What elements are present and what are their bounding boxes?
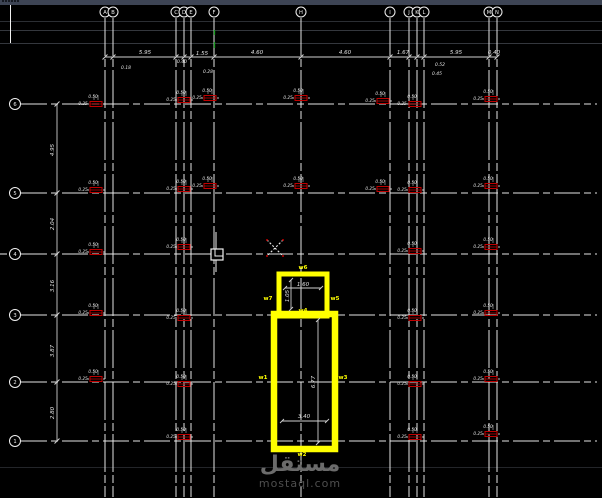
dimension-text: 2.04 bbox=[50, 217, 56, 230]
grid-bubble-label: F bbox=[213, 10, 216, 16]
wall-label: w1 bbox=[259, 375, 268, 381]
column-symbol-text: 0.50 bbox=[88, 180, 98, 185]
column-symbol-text: 0.25 bbox=[397, 381, 407, 386]
column-symbol-text: 0.50 bbox=[88, 94, 98, 99]
column-symbol-text: 0.25 bbox=[166, 315, 176, 320]
grid-bubble-label: 5 bbox=[13, 191, 16, 197]
dimension-text: 3.16 bbox=[50, 279, 56, 292]
drawing-canvas[interactable]: 5.951.554.604.601.675.950.400.180.400.28… bbox=[0, 0, 602, 498]
x-marker-tip bbox=[266, 255, 268, 257]
column-symbol-text: 0.50 bbox=[483, 424, 493, 429]
column-symbol-text: 0.25 bbox=[473, 431, 483, 436]
column-symbol-text: 0.25 bbox=[166, 434, 176, 439]
column-symbol-text: 0.25 bbox=[78, 101, 88, 106]
wall-label: w6 bbox=[299, 265, 308, 271]
column-symbol-text: 0.50 bbox=[176, 237, 186, 242]
column-symbol-text: 0.25 bbox=[78, 376, 88, 381]
grid-bubble-label: L bbox=[423, 10, 426, 16]
wall-label: w4 bbox=[299, 308, 308, 314]
column-symbol-text: 0.50 bbox=[176, 427, 186, 432]
pickbox-square[interactable] bbox=[211, 249, 223, 260]
watermark-arabic-text: مستقل bbox=[240, 453, 360, 476]
grid-bubble-label: 2 bbox=[13, 380, 16, 386]
grid-bubble-label: E bbox=[189, 10, 192, 16]
wall-label: w7 bbox=[264, 296, 273, 302]
grid-bubble-label: B bbox=[111, 10, 115, 16]
column-symbol-text: 0.25 bbox=[283, 183, 293, 188]
column-symbol-text: 0.50 bbox=[407, 94, 417, 99]
column-symbol-text: 0.25 bbox=[397, 187, 407, 192]
grid-bubble-label: M bbox=[487, 10, 491, 16]
column-symbol-text: 0.25 bbox=[473, 183, 483, 188]
column-symbol-text: 0.50 bbox=[88, 303, 98, 308]
column-symbol-text: 0.25 bbox=[166, 244, 176, 249]
dimension-text: 0.40 bbox=[488, 50, 501, 56]
column-symbol-text: 0.25 bbox=[473, 376, 483, 381]
grid-bubble-label: 6 bbox=[13, 102, 16, 108]
dimension-text: 2.80 bbox=[50, 406, 56, 419]
grid-bubble-label: H bbox=[299, 10, 303, 16]
dimension-text: 0.28 bbox=[203, 69, 213, 75]
dimension-text: 1.55 bbox=[196, 51, 209, 57]
cad-viewport: 5.951.554.604.601.675.950.400.180.400.28… bbox=[0, 0, 602, 498]
watermark-domain-text: mostaql.com bbox=[240, 477, 360, 490]
column-symbol-text: 0.50 bbox=[483, 303, 493, 308]
column-symbol-text: 0.25 bbox=[78, 187, 88, 192]
column-symbol-text: 0.25 bbox=[365, 98, 375, 103]
column-symbol-text: 0.50 bbox=[407, 427, 417, 432]
wall-label: w5 bbox=[331, 296, 340, 302]
x-marker-tip bbox=[282, 255, 284, 257]
column-symbol-text: 0.50 bbox=[293, 88, 303, 93]
column-symbol-text: 0.50 bbox=[407, 308, 417, 313]
grid-bubble-label: A bbox=[103, 10, 107, 16]
wall-dimension-text: 6.77 bbox=[311, 375, 317, 388]
grid-bubble-label: D bbox=[182, 10, 186, 16]
column-symbol-text: 0.50 bbox=[407, 374, 417, 379]
column-symbol-text: 0.50 bbox=[483, 176, 493, 181]
wall-dimension-text: 1.60 bbox=[297, 282, 310, 288]
grid-bubble-label: 1 bbox=[13, 439, 16, 445]
column-symbol-text: 0.25 bbox=[365, 186, 375, 191]
column-symbol-text: 0.50 bbox=[176, 374, 186, 379]
column-symbol-text: 0.25 bbox=[192, 95, 202, 100]
column-symbol-text: 0.50 bbox=[483, 237, 493, 242]
dimension-text: 0.18 bbox=[121, 65, 131, 71]
column-symbol-text: 0.25 bbox=[473, 244, 483, 249]
column-symbol-text: 0.25 bbox=[283, 95, 293, 100]
grid-bubble-label: N bbox=[495, 10, 499, 16]
column-symbol-text: 0.25 bbox=[397, 248, 407, 253]
column-symbol-text: 0.50 bbox=[202, 176, 212, 181]
column-symbol-text: 0.25 bbox=[397, 315, 407, 320]
column-symbol-text: 0.50 bbox=[176, 179, 186, 184]
column-symbol-text: 0.50 bbox=[483, 369, 493, 374]
column-symbol-text: 0.50 bbox=[375, 91, 385, 96]
dimension-text: 0.52 bbox=[435, 62, 445, 68]
x-marker-tip bbox=[282, 239, 284, 241]
dimension-text: 1.67 bbox=[397, 50, 410, 56]
dimension-text: 0.40 bbox=[177, 59, 187, 65]
column-symbol-text: 0.25 bbox=[192, 183, 202, 188]
grid-bubble-label: C bbox=[174, 10, 178, 16]
column-symbol-text: 0.25 bbox=[78, 310, 88, 315]
dimension-text: 4.95 bbox=[50, 143, 56, 156]
column-symbol-text: 0.50 bbox=[375, 179, 385, 184]
dimension-text: 5.95 bbox=[450, 50, 463, 56]
wall-label: w3 bbox=[339, 375, 348, 381]
column-symbol-text: 0.50 bbox=[88, 369, 98, 374]
dimension-text: 4.60 bbox=[339, 50, 352, 56]
column-symbol-text: 0.25 bbox=[473, 96, 483, 101]
column-symbol-text: 0.50 bbox=[407, 180, 417, 185]
watermark: مستقل mostaql.com bbox=[240, 453, 360, 490]
column-symbol-text: 0.25 bbox=[166, 186, 176, 191]
x-marker-tip bbox=[266, 239, 268, 241]
dimension-text: 5.95 bbox=[139, 50, 152, 56]
column-symbol-text: 0.25 bbox=[166, 381, 176, 386]
dimension-text: 0.45 bbox=[432, 71, 442, 77]
column-symbol-text: 0.25 bbox=[166, 97, 176, 102]
grid-bubble-label: 3 bbox=[13, 313, 16, 319]
column-symbol-text: 0.25 bbox=[473, 310, 483, 315]
column-symbol-text: 0.25 bbox=[397, 434, 407, 439]
dimension-text: 4.60 bbox=[251, 50, 264, 56]
column-symbol-text: 0.50 bbox=[176, 308, 186, 313]
column-symbol-text: 0.50 bbox=[202, 88, 212, 93]
wall-dimension-text: 1.05 bbox=[285, 289, 291, 302]
dimension-text: 3.87 bbox=[50, 344, 56, 357]
column-symbol-text: 0.25 bbox=[397, 101, 407, 106]
column-symbol-text: 0.50 bbox=[483, 89, 493, 94]
column-symbol-text: 0.50 bbox=[176, 90, 186, 95]
wall-dimension-text: 3.40 bbox=[298, 414, 311, 420]
column-symbol-text: 0.50 bbox=[88, 242, 98, 247]
column-symbol-text: 0.25 bbox=[78, 249, 88, 254]
column-symbol-text: 0.50 bbox=[293, 176, 303, 181]
column-symbol-text: 0.50 bbox=[407, 241, 417, 246]
